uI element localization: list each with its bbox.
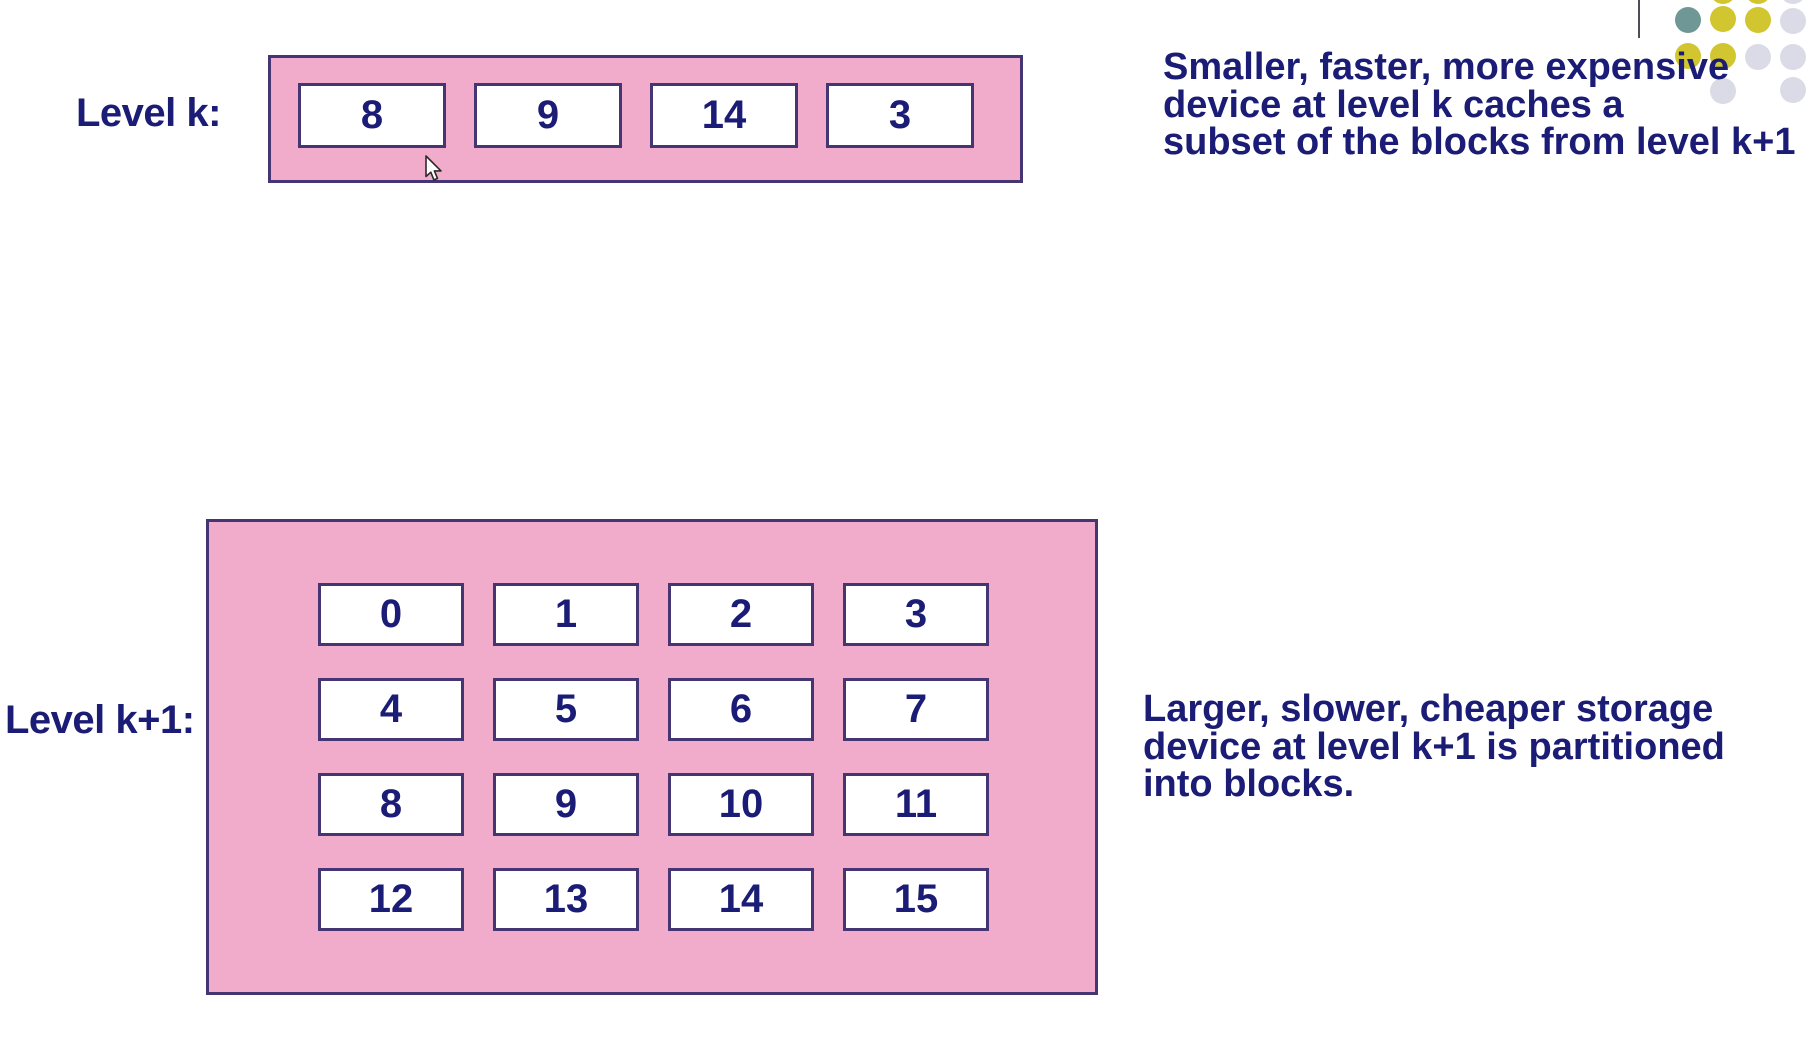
block-cell: 0 (318, 583, 464, 646)
annotation-line: device at level k+1 is partitioned (1143, 729, 1725, 767)
block-cell: 7 (843, 678, 989, 741)
block-cell: 6 (668, 678, 814, 741)
annotation-line: device at level k caches a (1163, 87, 1796, 125)
yellow-dot (1710, 6, 1736, 32)
block-cell: 11 (843, 773, 989, 836)
block-cell: 2 (668, 583, 814, 646)
block-cell: 3 (826, 83, 974, 148)
block-cell: 12 (318, 868, 464, 931)
teal-dot (1675, 7, 1701, 33)
annotation-line: subset of the blocks from level k+1 (1163, 124, 1796, 162)
yellow-dot (1745, 0, 1771, 4)
block-cell: 5 (493, 678, 639, 741)
mouse-cursor-icon (424, 155, 444, 183)
annotation-line: Smaller, faster, more expensive (1163, 49, 1796, 87)
level-k1-annotation: Larger, slower, cheaper storage device a… (1143, 691, 1725, 804)
block-cell: 4 (318, 678, 464, 741)
block-cell: 1 (493, 583, 639, 646)
yellow-dot (1745, 7, 1771, 33)
block-cell: 3 (843, 583, 989, 646)
level-k-label: Level k: (76, 93, 221, 133)
level-k-device: 89143 (268, 55, 1023, 183)
slide: Level k: 89143 Smaller, faster, more exp… (0, 0, 1818, 1042)
block-cell: 8 (298, 83, 446, 148)
level-k1-label: Level k+1: (5, 700, 195, 740)
annotation-line: Larger, slower, cheaper storage (1143, 691, 1725, 729)
block-cell: 14 (668, 868, 814, 931)
block-cell: 10 (668, 773, 814, 836)
block-cell: 13 (493, 868, 639, 931)
yellow-dot (1710, 0, 1736, 4)
gray-dot (1780, 8, 1806, 34)
logo-line (1638, 0, 1640, 38)
block-cell: 8 (318, 773, 464, 836)
level-k1-device: 0123456789101112131415 (206, 519, 1098, 995)
level-k-annotation: Smaller, faster, more expensive device a… (1163, 49, 1796, 162)
block-cell: 9 (474, 83, 622, 148)
block-cell: 15 (843, 868, 989, 931)
block-cell: 14 (650, 83, 798, 148)
gray-dot (1780, 0, 1806, 4)
block-cell: 9 (493, 773, 639, 836)
annotation-line: into blocks. (1143, 766, 1725, 804)
